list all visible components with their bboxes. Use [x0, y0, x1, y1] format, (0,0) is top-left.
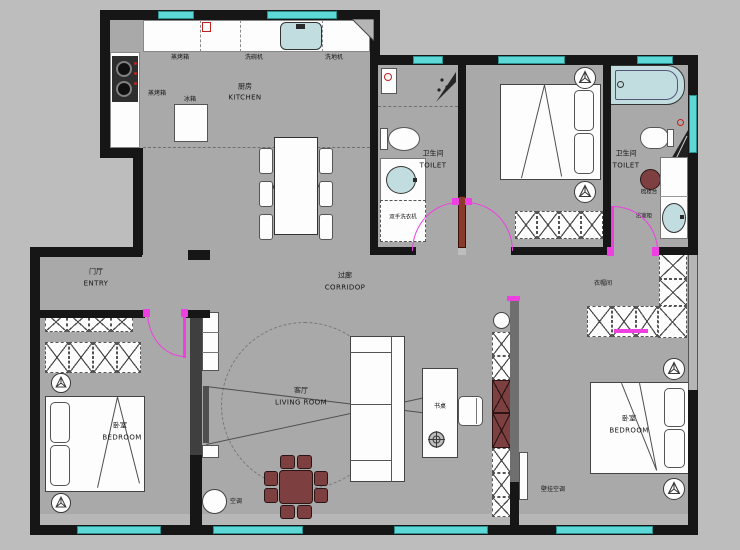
toilet-right-label-zh: 卫生间	[616, 151, 637, 158]
sofa-armrest-line	[350, 352, 391, 353]
corridor-label-en: CORRIDOP	[325, 285, 366, 292]
counter-divider	[200, 20, 201, 52]
mahjong-chair	[280, 505, 295, 519]
wall	[370, 63, 378, 255]
toilet-right-label-en: TOILET	[613, 163, 640, 170]
dressing-stool	[640, 169, 661, 190]
wall	[511, 247, 603, 255]
wall	[378, 247, 416, 255]
toilet-bowl	[640, 127, 669, 149]
water-point	[384, 73, 392, 81]
sofa-backrest-line	[391, 336, 392, 482]
cloakroom-label: 衣帽间	[594, 281, 612, 287]
desk-label: 书桌	[434, 404, 446, 410]
dressing-table-label: 梳妆台	[641, 190, 658, 196]
stove-knob	[134, 82, 137, 85]
wall	[603, 63, 611, 255]
cloakroom-unit	[587, 306, 612, 337]
pendant-lamp-icon	[493, 312, 510, 329]
counter-divider	[322, 20, 323, 52]
window	[498, 56, 565, 64]
kitchen-counter	[143, 20, 370, 52]
dining-chair	[259, 181, 273, 207]
desk-lamp-icon	[428, 431, 445, 448]
door-jamb	[507, 296, 520, 301]
corridor-label-zh: 过廊	[338, 273, 352, 280]
bookshelf-unit	[492, 413, 511, 448]
door-jamb	[181, 309, 188, 317]
kitchen-dining-divider	[143, 147, 370, 148]
wardrobe-unit	[559, 211, 581, 239]
wall-ac-unit	[519, 452, 528, 500]
mahjong-chair	[264, 488, 278, 503]
burner	[116, 61, 132, 77]
bookshelf-unit	[492, 332, 511, 356]
ceiling-lamp-icon	[51, 373, 71, 393]
wardrobe-unit	[69, 342, 93, 373]
mahjong-chair	[314, 488, 328, 503]
mahjong-chair	[264, 471, 278, 486]
bathtub-inner	[615, 70, 678, 100]
ceiling-lamp-icon	[51, 493, 71, 513]
ceiling-lamp-icon	[574, 181, 596, 203]
tv-cabinet-divider	[202, 332, 219, 333]
dining-chair	[319, 214, 333, 240]
washer-label: 双手洗衣机	[389, 215, 417, 221]
dishwasher-label: 洗碗机	[245, 55, 263, 61]
wardrobe-unit	[117, 342, 141, 373]
wall	[656, 247, 688, 255]
bathtub-drain	[617, 81, 624, 88]
bedroom-right-label-en: BEDROOM	[609, 428, 648, 435]
dining-chair	[259, 214, 273, 240]
door-leaf	[183, 312, 186, 358]
pillow	[664, 429, 685, 468]
window	[267, 11, 337, 19]
bedroom-right-label-zh: 卧室	[622, 416, 636, 423]
ceiling-lamp-icon	[663, 358, 685, 380]
fridge	[174, 104, 208, 142]
floor-scrubber-label: 洗地机	[325, 55, 343, 61]
dining-table	[274, 137, 318, 235]
floor-ac-label: 空调	[230, 499, 242, 505]
pillow	[574, 133, 594, 174]
toilet-left-label-zh: 卫生间	[423, 151, 444, 158]
desk-chair	[458, 396, 483, 426]
vanity-faucet	[680, 215, 684, 219]
window	[213, 526, 303, 534]
floor-plan: 厨房 KITCHEN DINING ROOM 卫生间 TOILET 卫生间 TO…	[0, 0, 740, 550]
mahjong-table	[279, 470, 313, 504]
dining-chair	[259, 148, 273, 174]
fridge-label: 冰箱	[184, 97, 196, 103]
bookshelf-unit	[492, 497, 511, 517]
door-jamb	[143, 309, 150, 317]
bedroom-left-label-zh: 卧室	[113, 423, 127, 430]
pillow	[664, 388, 685, 427]
gas-valve	[202, 22, 211, 32]
bookshelf-unit	[492, 356, 511, 380]
sofa-cushion-line	[350, 404, 391, 405]
wall	[133, 148, 143, 255]
water-heater	[381, 68, 397, 94]
entry-label-en: ENTRY	[84, 281, 109, 288]
media-wall	[190, 310, 202, 458]
door-hinge	[465, 198, 472, 205]
basin-faucet	[413, 178, 417, 182]
wall	[688, 390, 698, 535]
wall	[100, 10, 110, 158]
bedroom-left-label-en: BEDROOM	[102, 435, 141, 442]
bookshelf-wall-base	[510, 482, 519, 527]
burner	[116, 81, 132, 97]
counter-divider	[240, 20, 241, 52]
dining-chair	[319, 148, 333, 174]
wall-window-band	[688, 255, 698, 390]
wall	[688, 55, 698, 255]
wardrobe-unit	[45, 342, 69, 373]
bookshelf-unit	[492, 380, 511, 413]
door-hinge	[452, 198, 459, 205]
toilet-tank	[380, 128, 388, 150]
media-wall-base	[190, 455, 202, 527]
mahjong-chair	[280, 455, 295, 469]
water-point	[677, 119, 684, 126]
stove-knob	[134, 62, 137, 65]
vanity-divider	[660, 196, 688, 197]
door-jamb	[607, 247, 614, 256]
window	[556, 526, 653, 534]
sofa-armrest-line	[350, 460, 391, 461]
desk-chair-line	[476, 398, 477, 424]
window	[689, 95, 697, 153]
stove-knob	[134, 72, 137, 75]
media-cabinet	[202, 445, 219, 458]
toilet-left-label-en: TOILET	[420, 163, 447, 170]
tv-cabinet-divider	[202, 352, 219, 353]
pillow	[574, 90, 594, 131]
toilet-bowl	[388, 127, 420, 151]
wall	[188, 250, 210, 260]
wardrobe-unit	[93, 342, 117, 373]
pillow	[50, 445, 70, 486]
entry-label-zh: 门厅	[89, 269, 103, 276]
kitchen-label-zh: 厨房	[238, 84, 252, 91]
floor-ac-unit	[202, 489, 227, 514]
wash-basin	[386, 166, 416, 194]
window	[637, 56, 673, 64]
bookshelf-unit	[492, 448, 511, 473]
wall	[30, 247, 142, 257]
wardrobe-unit	[537, 211, 559, 239]
wall	[39, 310, 145, 318]
cloakroom-unit	[658, 306, 687, 338]
bookshelf-unit	[492, 473, 511, 497]
door-leaf	[611, 206, 614, 252]
mahjong-chair	[314, 471, 328, 486]
ceiling-lamp-icon	[574, 67, 596, 89]
wall	[30, 247, 40, 535]
living-label-en: LIVING ROOM	[275, 400, 327, 407]
cloakroom-unit	[659, 279, 687, 306]
kitchen-label-en: KITCHEN	[228, 95, 261, 102]
dining-chair	[319, 181, 333, 207]
projector-screen	[203, 386, 209, 443]
mahjong-chair	[297, 455, 312, 469]
corner-notch	[352, 19, 374, 41]
wall-ac-label: 壁挂空调	[541, 487, 565, 493]
toilet-left-divider	[378, 106, 458, 107]
pillow	[50, 402, 70, 443]
living-label-zh: 客厅	[294, 388, 308, 395]
window	[158, 11, 194, 19]
window	[77, 526, 161, 534]
window	[413, 56, 443, 64]
sink-faucet	[296, 24, 305, 29]
dining-floor	[143, 150, 370, 255]
window	[394, 526, 488, 534]
steam-oven-side-label: 蒸烤箱	[148, 91, 166, 97]
door-jamb	[652, 247, 659, 256]
bookshelf-wall	[510, 298, 519, 482]
mahjong-chair	[297, 505, 312, 519]
wardrobe-unit	[515, 211, 537, 239]
steam-oven-label: 蒸烤箱	[171, 55, 189, 61]
shower-head-icon	[432, 70, 458, 104]
sliding-door	[614, 329, 648, 333]
wall	[458, 63, 466, 198]
wardrobe-unit	[581, 211, 603, 239]
tv-cabinet	[202, 312, 219, 371]
ceiling-lamp-icon	[663, 478, 685, 500]
cloakroom-unit	[659, 252, 687, 279]
